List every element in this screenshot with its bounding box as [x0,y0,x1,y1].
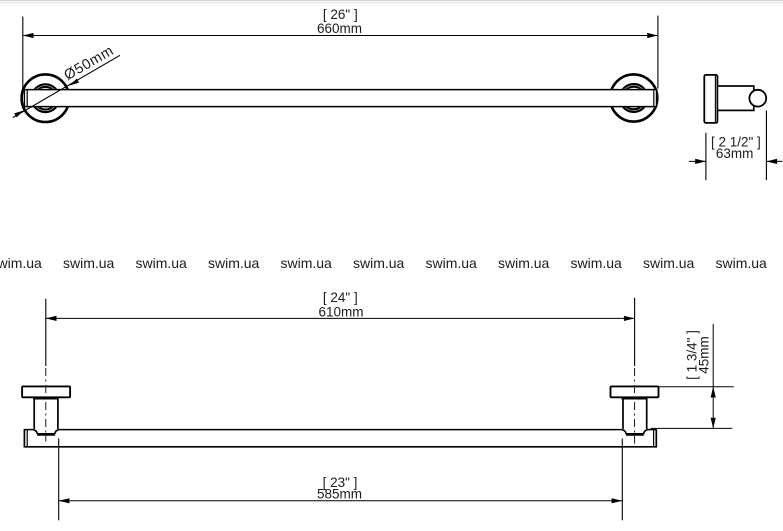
svg-text:[ 24" ]: [ 24" ] [323,290,358,305]
svg-text:swim.ua: swim.ua [353,255,405,271]
svg-text:swim.ua: swim.ua [63,255,115,271]
svg-text:swim.ua: swim.ua [498,255,550,271]
svg-text:swim.ua: swim.ua [136,255,188,271]
svg-text:585mm: 585mm [317,487,362,502]
svg-text:45mm: 45mm [696,336,711,374]
svg-text:swim.ua: swim.ua [208,255,260,271]
svg-text:swim.ua: swim.ua [716,255,768,271]
svg-text:swim.ua: swim.ua [643,255,695,271]
svg-text:Ø50mm: Ø50mm [62,43,117,84]
svg-text:610mm: 610mm [318,305,363,320]
svg-text:swim.ua: swim.ua [571,255,623,271]
svg-text:660mm: 660mm [317,21,362,36]
svg-text:[ 26" ]: [ 26" ] [323,7,358,22]
svg-text:swim.ua: swim.ua [426,255,478,271]
svg-text:63mm: 63mm [716,146,754,161]
svg-text:swim.ua: swim.ua [281,255,333,271]
svg-text:swim.ua: swim.ua [0,255,42,271]
